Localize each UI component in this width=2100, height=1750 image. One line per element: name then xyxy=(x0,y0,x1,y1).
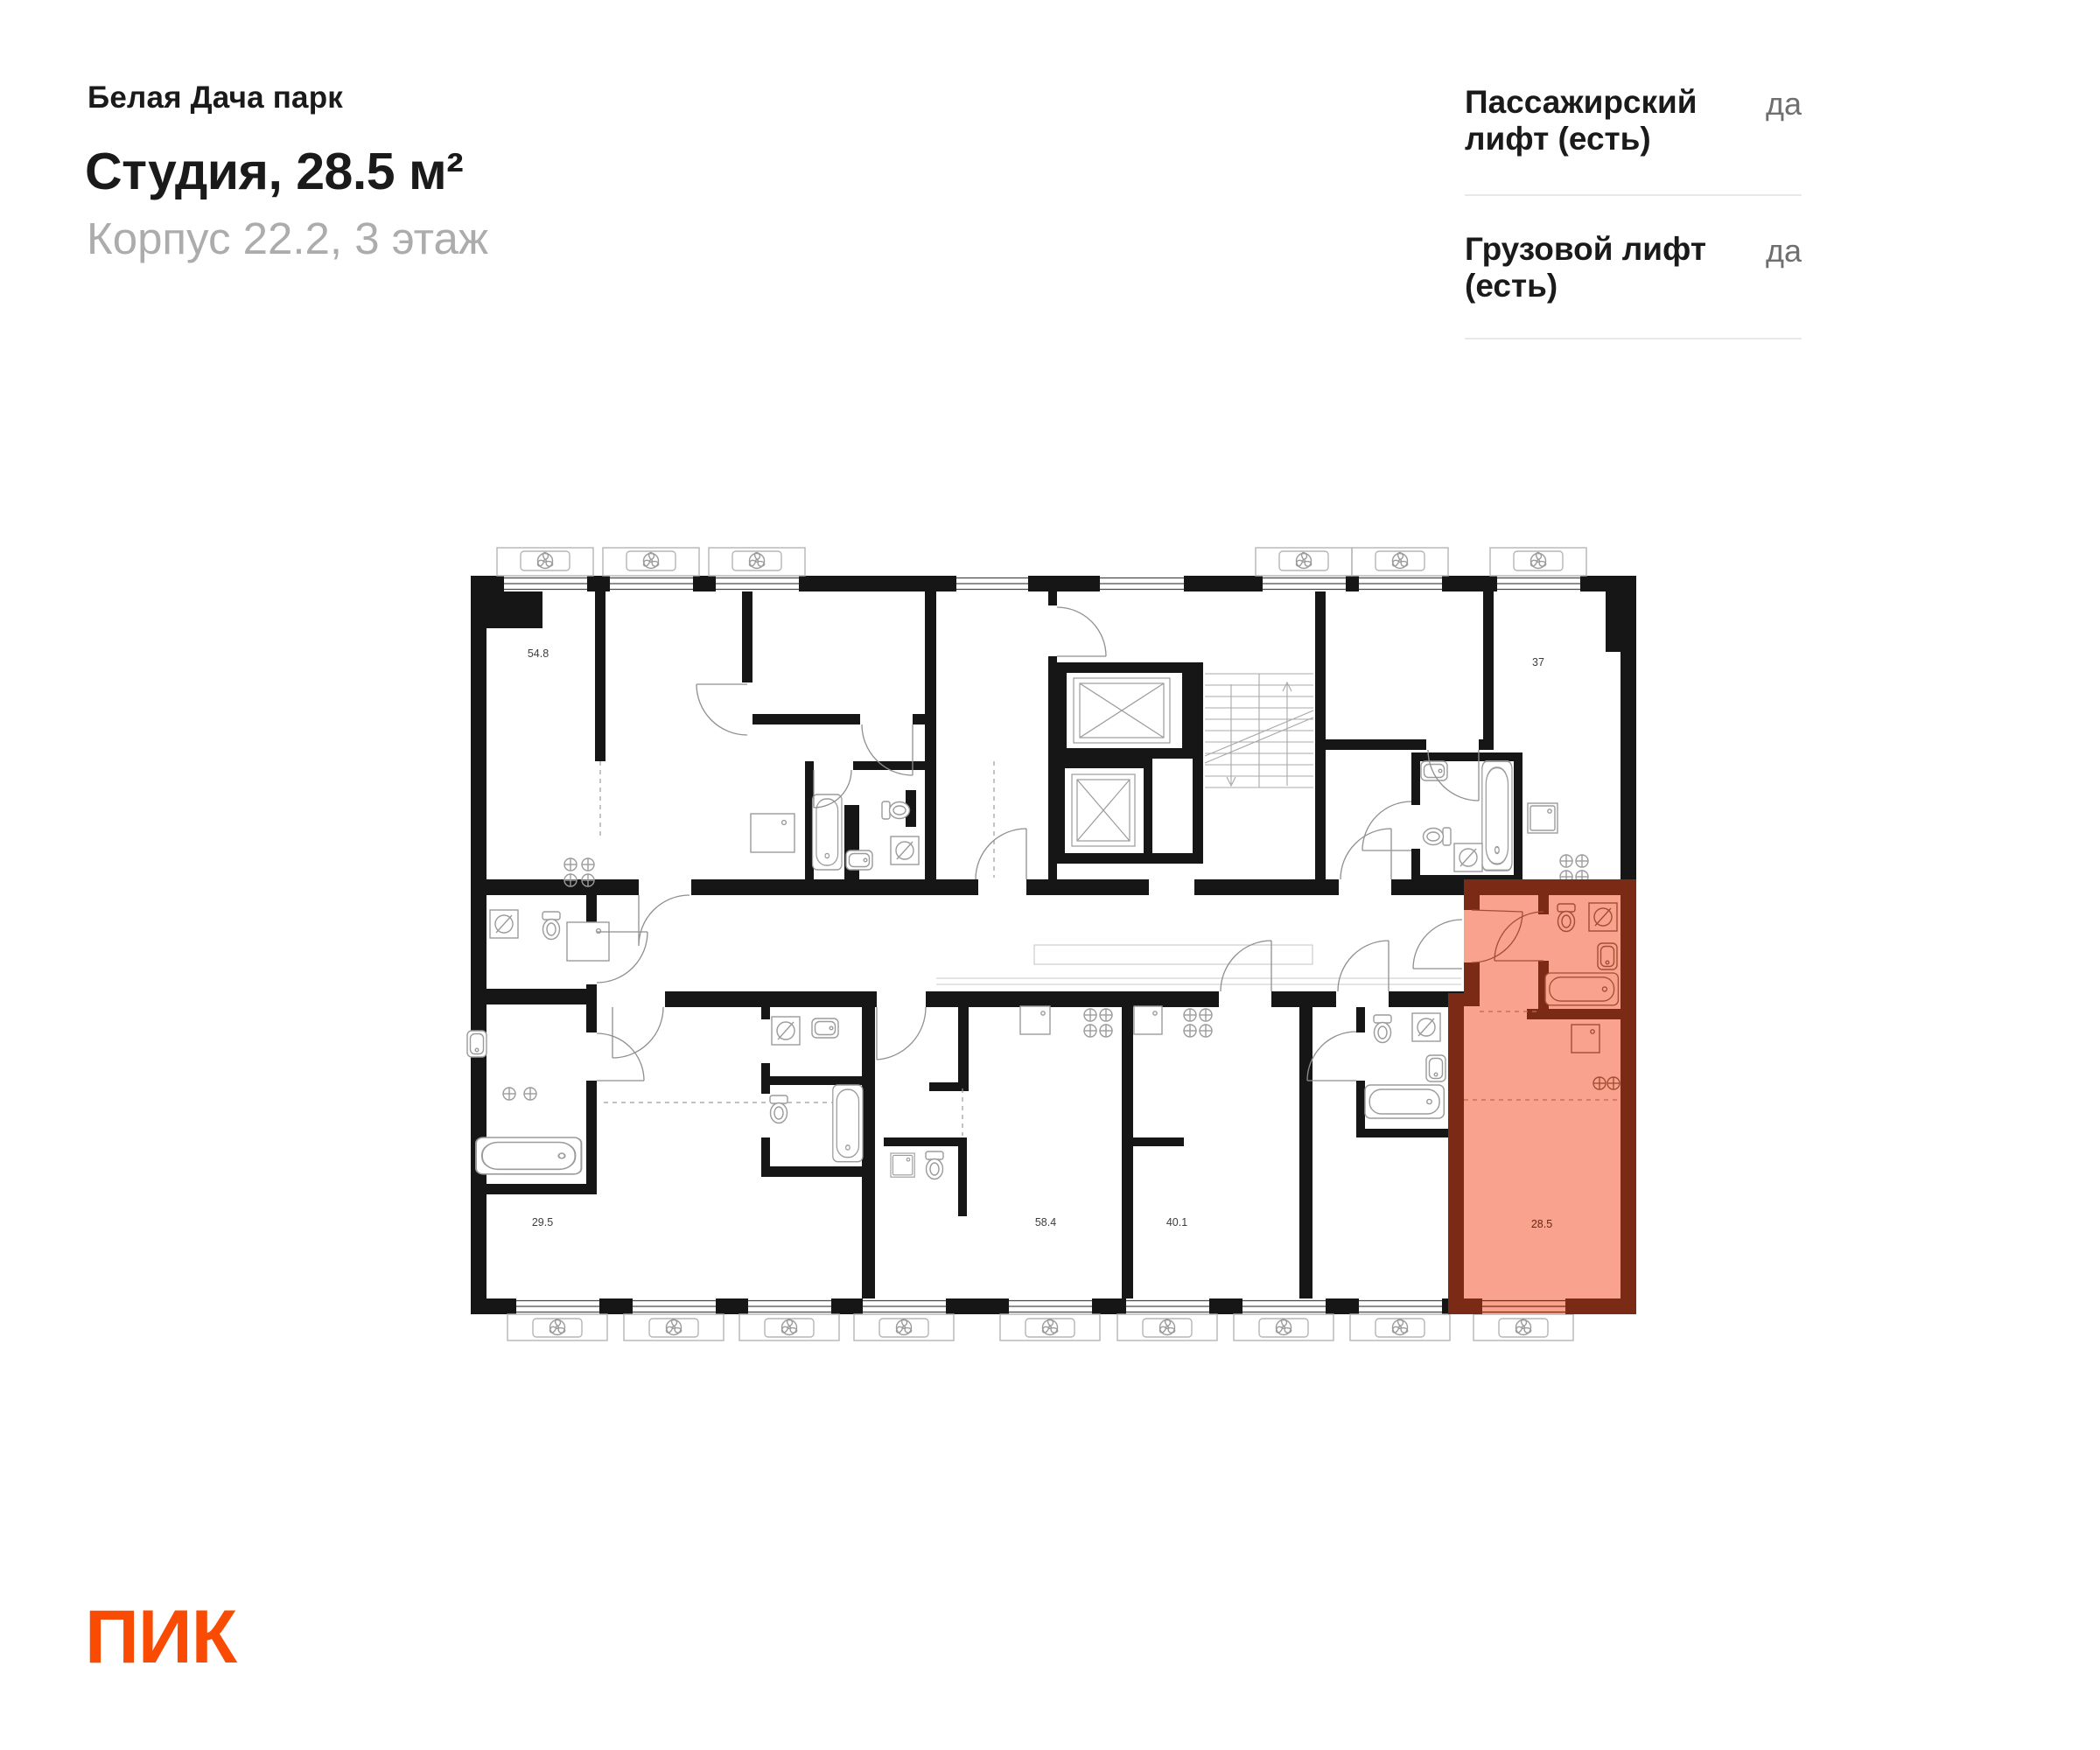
unit-label-37: 37 xyxy=(1532,656,1544,668)
unit-label-29-5: 29.5 xyxy=(532,1216,553,1228)
info-label: Пассажирский лифт (есть) xyxy=(1465,84,1766,157)
unit-label-40-1: 40.1 xyxy=(1166,1216,1187,1228)
lift-info-panel: Пассажирский лифт (есть) да Грузовой лиф… xyxy=(1465,84,1802,339)
project-name: Белая Дача парк xyxy=(87,80,343,115)
page-subtitle: Корпус 22.2, 3 этаж xyxy=(87,213,488,264)
info-label: Грузовой лифт (есть) xyxy=(1465,231,1766,304)
unit-label-28-5[interactable]: 28.5 xyxy=(1531,1218,1552,1230)
info-value: да xyxy=(1766,231,1802,269)
unit-label-58-4: 58.4 xyxy=(1035,1216,1056,1228)
elevator-lobby-floor xyxy=(1034,945,1312,964)
info-value: да xyxy=(1766,84,1802,122)
info-row-passenger-lift: Пассажирский лифт (есть) да xyxy=(1465,84,1802,196)
fixtures xyxy=(467,761,1588,1179)
pik-logo[interactable]: ПИК xyxy=(85,1594,236,1681)
page-title: Студия, 28.5 м² xyxy=(85,142,463,201)
floor-plan: 54.8 37 29.5 58.4 40.1 28.5 xyxy=(464,542,1645,1374)
staircase xyxy=(1205,674,1313,787)
unit-label-54-8: 54.8 xyxy=(528,647,549,660)
page: { "header": { "project": "Белая Дача пар… xyxy=(0,0,2100,1750)
info-row-cargo-lift: Грузовой лифт (есть) да xyxy=(1465,196,1802,339)
corridor-floor-line xyxy=(936,978,1461,984)
